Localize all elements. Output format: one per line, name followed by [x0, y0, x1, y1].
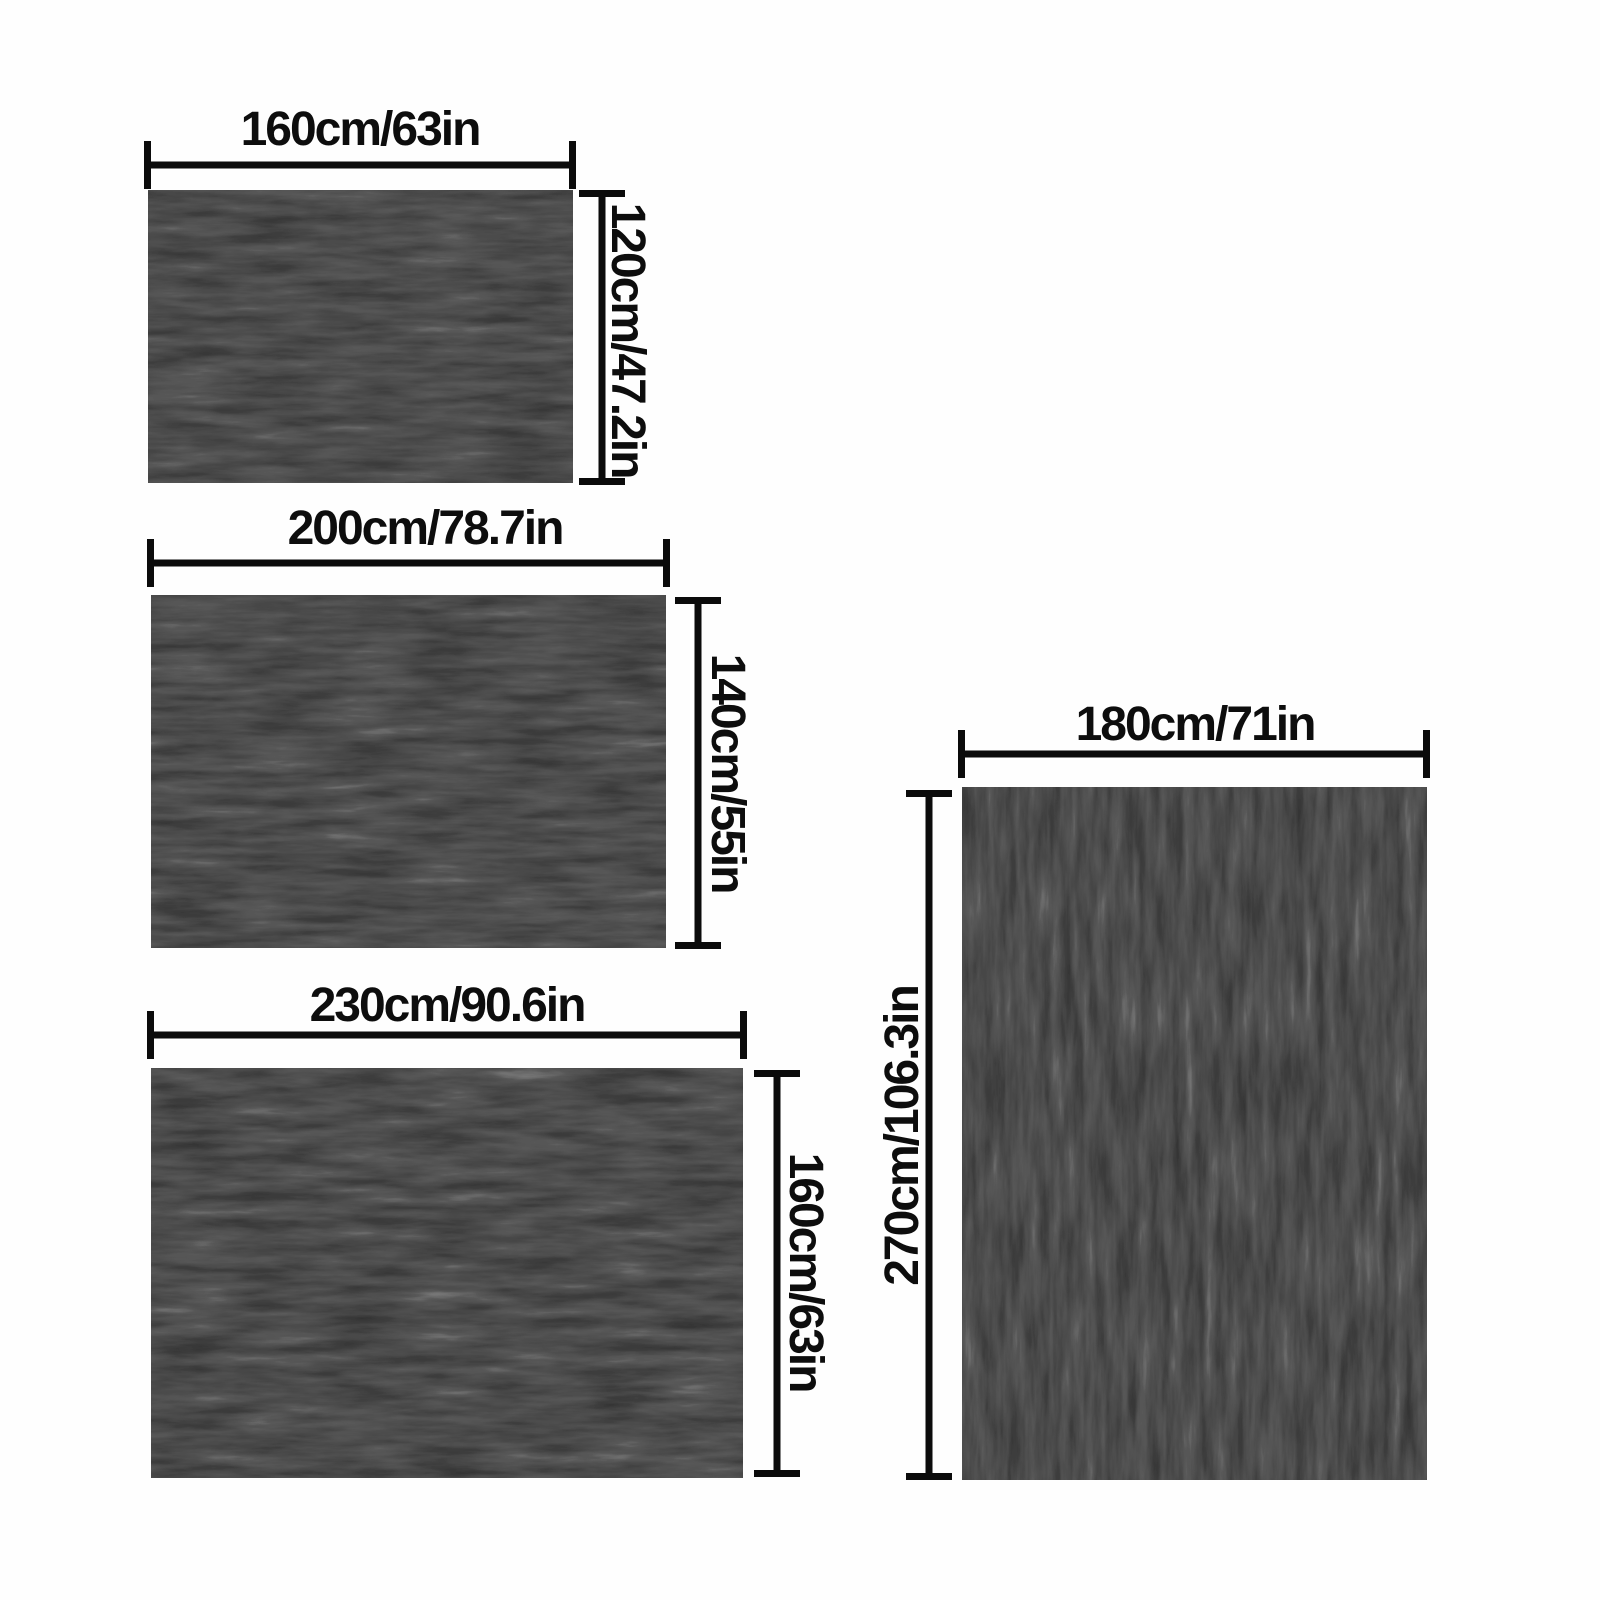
dimension-bar: [144, 162, 576, 169]
dimension-bar: [147, 1032, 747, 1039]
dimension-end-cap: [579, 478, 625, 485]
height-label: 270cm/106.3in: [879, 986, 927, 1286]
fur-texture: [148, 190, 573, 483]
fur-texture: [151, 595, 666, 948]
width-label: 180cm/71in: [1076, 701, 1315, 749]
width-label: 160cm/63in: [241, 106, 480, 154]
dimension-end-cap: [740, 1011, 747, 1059]
rug-swatch-180x270: [962, 787, 1427, 1480]
rug-size-chart: 160cm/63in 120cm/47.2in: [0, 0, 1600, 1600]
dimension-end-cap: [675, 942, 721, 949]
rug-swatch-160x120: [148, 190, 573, 483]
dimension-end-cap: [754, 1470, 800, 1477]
dimension-end-cap: [663, 539, 670, 587]
rug-swatch-230x160: [151, 1068, 743, 1478]
height-label: 120cm/47.2in: [603, 203, 651, 478]
dimension-bar: [147, 560, 670, 567]
fur-texture: [151, 1068, 743, 1478]
rug-swatch-200x140: [151, 595, 666, 948]
dimension-end-cap: [569, 141, 576, 189]
height-label: 160cm/63in: [781, 1153, 829, 1392]
dimension-end-cap: [906, 1473, 952, 1480]
fur-texture: [962, 787, 1427, 1480]
width-label: 200cm/78.7in: [288, 505, 563, 553]
width-label: 230cm/90.6in: [310, 982, 585, 1030]
dimension-bar: [958, 751, 1430, 758]
dimension-end-cap: [1423, 730, 1430, 778]
height-label: 140cm/55in: [703, 654, 751, 893]
